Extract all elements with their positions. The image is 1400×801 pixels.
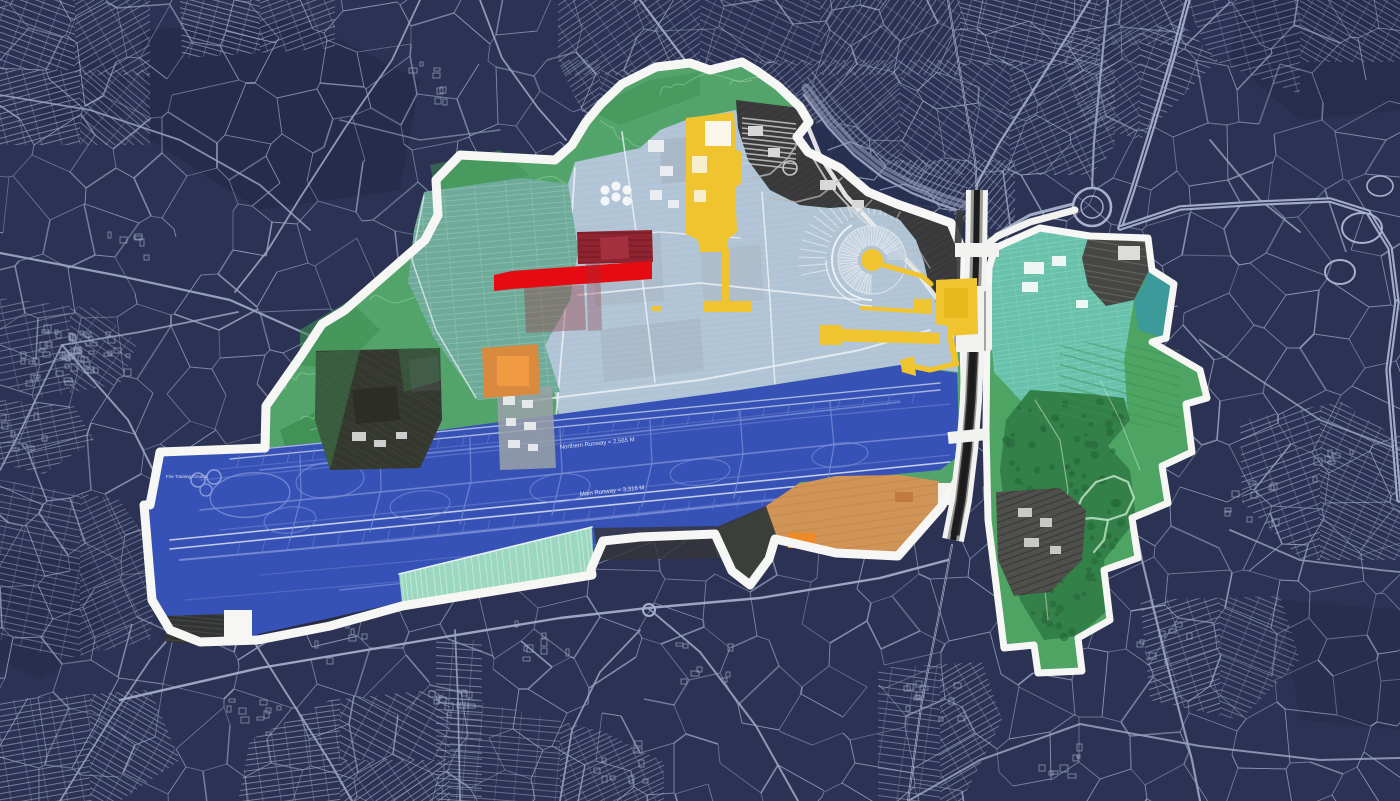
svg-text:Fire Training Ground: Fire Training Ground [166,474,208,479]
